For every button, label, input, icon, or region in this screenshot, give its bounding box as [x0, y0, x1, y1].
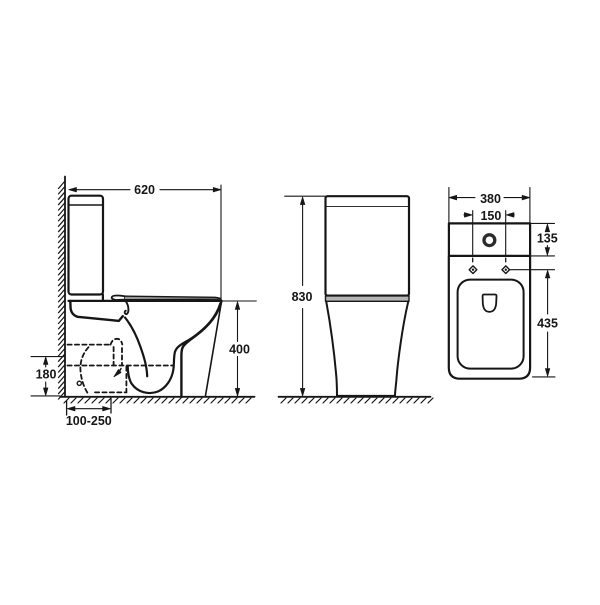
svg-text:400: 400 [229, 343, 250, 357]
svg-text:435: 435 [537, 317, 558, 331]
svg-text:100-250: 100-250 [66, 414, 112, 428]
svg-text:150: 150 [480, 209, 501, 223]
svg-text:830: 830 [292, 290, 313, 304]
svg-text:620: 620 [134, 183, 155, 197]
svg-text:180: 180 [36, 368, 57, 382]
svg-text:135: 135 [537, 231, 558, 245]
svg-text:380: 380 [480, 192, 501, 206]
